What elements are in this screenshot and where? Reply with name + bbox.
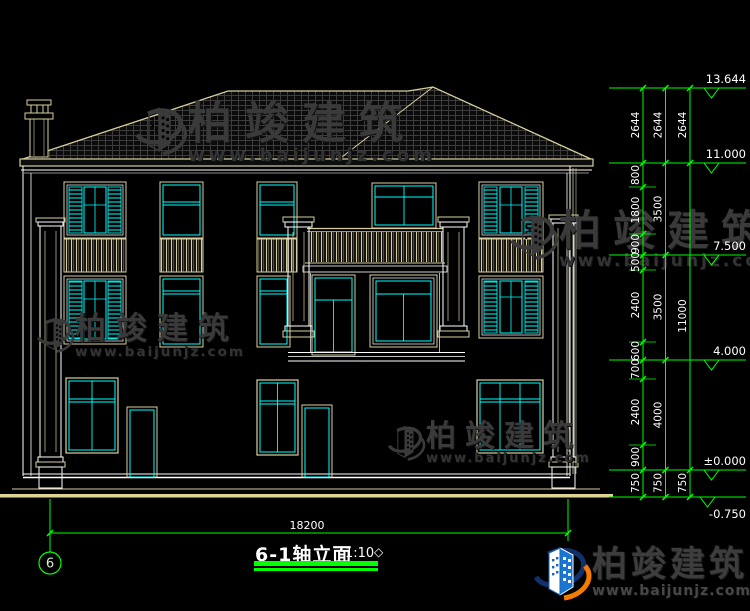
level-7500: 7.500 xyxy=(713,239,746,253)
overall-width-dim: 18200 xyxy=(290,519,325,532)
svg-text:2644: 2644 xyxy=(653,111,665,138)
svg-text:4000: 4000 xyxy=(653,402,665,429)
level-0000: ±0.000 xyxy=(703,454,746,468)
title-underline-thin xyxy=(254,568,378,571)
level-markers: 13.644 11.000 7.500 4.000 ±0.000 -0.750 xyxy=(700,72,746,521)
drawing-scale: 1:10 xyxy=(345,546,374,561)
svg-text:900: 900 xyxy=(630,234,642,254)
dim-labels-chain2: 2644 3500 3500 4000 750 xyxy=(653,111,665,493)
svg-text:3500: 3500 xyxy=(653,294,665,321)
axis-number: 6 xyxy=(46,557,54,572)
svg-text:750: 750 xyxy=(677,473,689,493)
svg-text:3500: 3500 xyxy=(653,196,665,223)
svg-text:800: 800 xyxy=(630,165,642,185)
svg-text:11000: 11000 xyxy=(677,299,689,332)
title-underline xyxy=(254,561,378,566)
logo-url: www.baijunjz.com xyxy=(592,583,750,599)
logo-icon xyxy=(528,540,592,606)
level-4000: 4.000 xyxy=(713,344,746,358)
svg-text:2644: 2644 xyxy=(677,111,689,138)
dim-labels-chain1: 2644 800 1800 900 500 2400 600 700 2400 … xyxy=(630,111,642,493)
svg-text:750: 750 xyxy=(630,473,642,493)
dimension-ticks xyxy=(640,85,693,500)
dim-labels-chain3: 2644 11000 750 xyxy=(677,111,689,493)
diamond-icon: ◇ xyxy=(374,545,383,559)
svg-text:700: 700 xyxy=(630,359,642,379)
svg-text:600: 600 xyxy=(630,341,642,361)
cad-canvas: 柏竣建筑 www.baijunjz.com 柏竣建筑 www.baijunjz.… xyxy=(0,0,750,611)
svg-text:2400: 2400 xyxy=(630,399,642,426)
svg-text:1800: 1800 xyxy=(630,197,642,224)
logo-brand: 柏竣建筑 xyxy=(592,547,750,584)
level-13644: 13.644 xyxy=(706,72,746,86)
svg-text:2400: 2400 xyxy=(630,292,642,319)
dimension-layer: 2644 800 1800 900 500 2400 600 700 2400 … xyxy=(0,0,750,611)
svg-text:750: 750 xyxy=(653,473,665,493)
svg-text:2644: 2644 xyxy=(630,111,642,138)
svg-text:500: 500 xyxy=(630,252,642,272)
company-logo: 柏竣建筑 www.baijunjz.com xyxy=(528,540,750,606)
level-neg-0750: -0.750 xyxy=(709,507,746,521)
level-11000: 11.000 xyxy=(706,147,746,161)
svg-text:900: 900 xyxy=(630,447,642,467)
